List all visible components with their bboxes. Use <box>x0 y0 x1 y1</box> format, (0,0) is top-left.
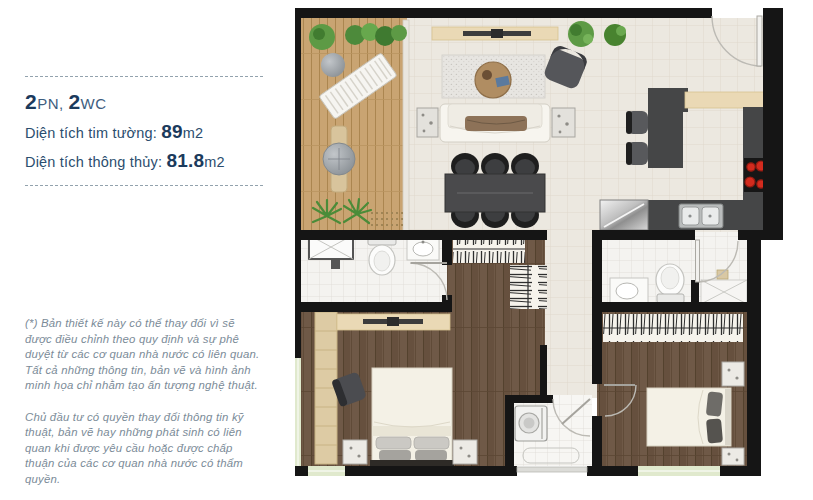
wardrobe <box>603 314 743 342</box>
bar-stool <box>626 142 648 165</box>
divider-bottom <box>25 185 263 186</box>
net-area-unit: m2 <box>204 154 225 170</box>
bathrooms-label: WC <box>81 95 107 112</box>
headboard <box>370 460 454 466</box>
bedrooms-label: PN, <box>37 95 68 112</box>
wall-area-line: Diện tích tim tường: 89m2 <box>25 121 263 143</box>
net-area-line: Diện tích thông thủy: 81.8m2 <box>25 150 263 172</box>
pillow <box>415 450 447 461</box>
balcony-deck <box>301 18 407 232</box>
wall-area-label: Diện tích tim tường: <box>25 125 161 141</box>
side-table <box>417 108 438 137</box>
disclaimer-paragraph-1: (*) Bản thiết kế này có thể thay đổi vì … <box>25 316 263 394</box>
double-sink <box>679 204 723 228</box>
bathroom-sink <box>407 238 439 260</box>
net-area-value: 81.8 <box>166 150 204 171</box>
double-bed <box>370 368 454 466</box>
bedrooms-count: 2 <box>25 90 37 113</box>
balcony-sliding-door <box>403 20 409 232</box>
laundry-window <box>517 467 587 472</box>
dining-area <box>445 153 545 228</box>
divider-top <box>25 76 263 77</box>
pillow <box>379 450 411 461</box>
net-area-label: Diện tích thông thủy: <box>25 154 166 170</box>
nightstand <box>453 440 477 464</box>
refrigerator <box>600 200 648 230</box>
bathroom-sink <box>610 278 648 304</box>
pillow <box>706 391 723 416</box>
nightstand <box>343 440 367 464</box>
pillow <box>706 418 723 443</box>
disclaimer-paragraph-2: Chủ đầu tư có quyền thay đổi thông tin k… <box>25 410 263 488</box>
toilet <box>656 264 684 303</box>
single-bed <box>647 388 731 446</box>
wall-area-value: 89 <box>161 121 183 142</box>
entry-cabinet <box>685 92 767 108</box>
unit-info-panel: 2PN, 2WC Diện tích tim tường: 89m2 Diện … <box>25 76 263 500</box>
legal-disclaimer: (*) Bản thiết kế này có thể thay đổi vì … <box>25 316 263 487</box>
plant-icon <box>604 24 626 46</box>
bar-stool <box>626 111 648 134</box>
unit-summary: 2PN, 2WC <box>25 90 263 114</box>
stove <box>744 158 766 192</box>
wall-area-unit: m2 <box>183 125 204 141</box>
shower-head-icon <box>331 260 340 269</box>
bathrooms-count: 2 <box>68 90 80 113</box>
wardrobe <box>510 265 547 309</box>
side-table <box>552 108 575 137</box>
pillow <box>414 437 449 449</box>
plant-icon <box>568 21 594 47</box>
pillow <box>376 437 411 449</box>
floor-plan <box>295 8 795 480</box>
floor-plan-page: 2PN, 2WC Diện tích tim tường: 89m2 Diện … <box>0 0 813 500</box>
pouf <box>321 53 345 77</box>
nightstand <box>722 362 744 386</box>
washing-machine <box>515 406 547 441</box>
toilet <box>368 236 396 275</box>
nightstand <box>722 448 744 465</box>
sofa <box>440 104 550 142</box>
